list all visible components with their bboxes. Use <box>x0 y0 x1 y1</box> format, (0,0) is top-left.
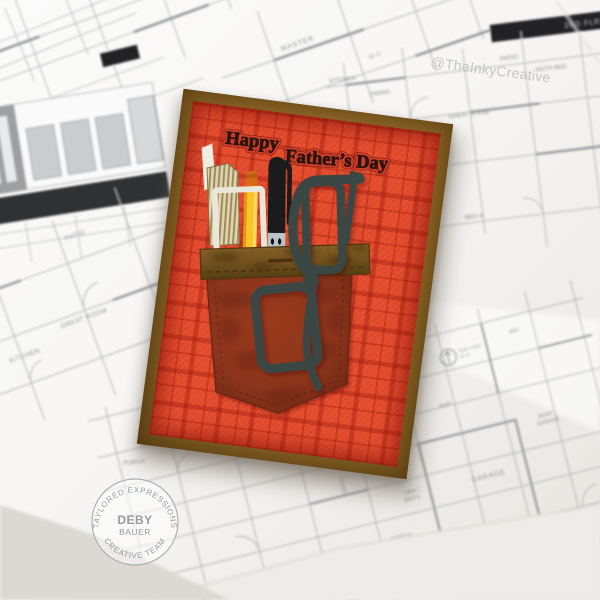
svg-text:BAUER: BAUER <box>119 527 151 537</box>
svg-text:DEBY: DEBY <box>117 513 152 527</box>
